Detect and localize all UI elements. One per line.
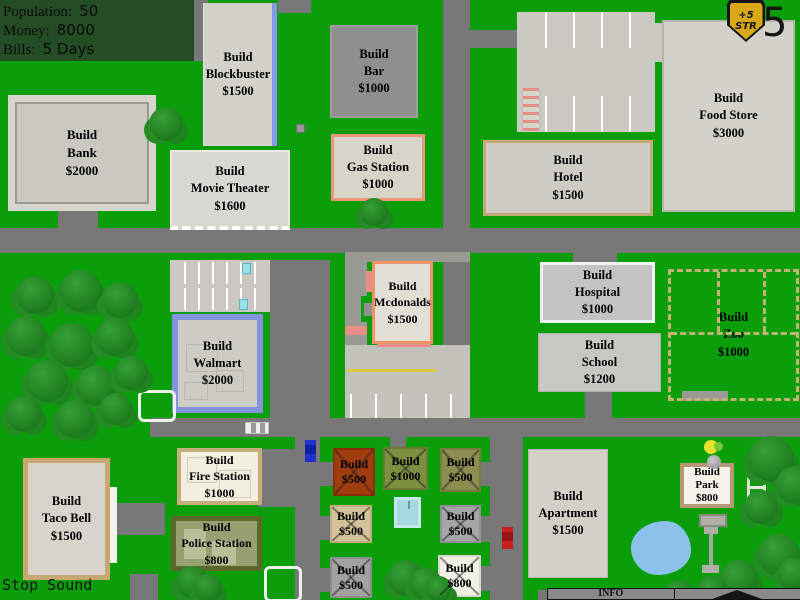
- build-house-button[interactable]: Build $500: [333, 448, 375, 496]
- tree: [16, 276, 54, 314]
- build-label: Build: [340, 457, 368, 472]
- pond: [631, 521, 691, 575]
- building-name: Movie Theater: [191, 180, 270, 197]
- building-name: Bar: [364, 63, 384, 80]
- building-price: $1000: [582, 301, 613, 318]
- building-price: $1600: [214, 198, 245, 215]
- road: [443, 30, 517, 48]
- day-counter: 5: [762, 1, 787, 45]
- population-value: 50: [79, 2, 98, 20]
- expand-panel-tab[interactable]: [675, 589, 800, 599]
- play-ball: [707, 455, 721, 469]
- build-hospital-button[interactable]: Build Hospital $1000: [540, 262, 655, 323]
- house-price: $500: [339, 578, 363, 593]
- white-car: [245, 422, 269, 434]
- badge-bonus: +5: [738, 10, 753, 21]
- zoo-fence-line: [763, 272, 766, 332]
- trash-can: [296, 124, 305, 133]
- driveway: [115, 503, 165, 535]
- build-label: Build: [52, 493, 81, 510]
- cart-return-rack: [521, 88, 541, 132]
- building-name: Zoo: [723, 326, 744, 343]
- build-walmart-button[interactable]: Build Walmart $2000: [172, 314, 263, 413]
- tree: [149, 107, 183, 141]
- tree: [360, 198, 388, 226]
- flower-leaf: [714, 442, 723, 451]
- parking-lines: [350, 394, 468, 418]
- driveway: [318, 462, 334, 486]
- driveway: [58, 210, 98, 230]
- road: [270, 260, 330, 418]
- building-price: $2000: [66, 162, 99, 180]
- swimming-pool: [394, 497, 421, 528]
- bills-label: Bills:: [3, 42, 36, 59]
- tree: [26, 360, 68, 402]
- tree: [776, 466, 800, 504]
- build-label: Build: [337, 509, 365, 524]
- bills-row: Bills: 5 Days: [3, 40, 194, 59]
- build-house-button[interactable]: Build $500: [330, 557, 372, 598]
- house-price: $500: [342, 472, 366, 487]
- build-label: Build: [203, 338, 232, 355]
- badge-stat: STR: [735, 21, 757, 32]
- lamppost-pole: [709, 533, 713, 569]
- bills-value: 5 Days: [43, 40, 95, 58]
- house-price: $500: [449, 470, 473, 485]
- build-taco-bell-button[interactable]: Build Taco Bell $1500: [23, 458, 110, 580]
- building-price: $2000: [202, 372, 233, 389]
- money-label: Money:: [3, 23, 50, 40]
- zoo-fence-line: [717, 272, 720, 332]
- build-label: Build: [359, 46, 388, 63]
- build-label: Build: [223, 49, 252, 66]
- tree: [100, 393, 132, 425]
- info-tab[interactable]: INFO: [548, 589, 675, 599]
- population-row: Population: 50: [3, 2, 194, 21]
- building-price: $1000: [718, 344, 749, 361]
- parking-lines: [519, 12, 653, 48]
- driveway: [585, 392, 612, 418]
- build-food-store-button[interactable]: Build Food Store $3000: [662, 20, 795, 212]
- tree: [778, 558, 800, 590]
- building-price: $800: [696, 492, 718, 505]
- building-price: $1000: [362, 176, 393, 193]
- tree: [96, 318, 134, 356]
- building-price: $1200: [584, 371, 615, 388]
- build-label: Build: [583, 267, 612, 284]
- lamppost-base: [702, 565, 719, 573]
- drive-thru-window: [345, 326, 367, 335]
- house-price: $500: [339, 524, 363, 539]
- build-house-button[interactable]: Build $800: [438, 555, 481, 597]
- build-police-station-button[interactable]: Build Police Station $800: [171, 516, 262, 571]
- build-label: Build: [205, 452, 233, 469]
- building-name: Gas Station: [347, 159, 409, 176]
- build-house-button[interactable]: Build $500: [440, 505, 481, 543]
- road: [130, 574, 158, 600]
- road: [278, 0, 311, 13]
- population-label: Population:: [3, 4, 72, 21]
- pool-ladder: [408, 501, 410, 509]
- build-hotel-button[interactable]: Build Hotel $1500: [483, 140, 653, 216]
- build-label: Build: [719, 309, 748, 326]
- build-movie-theater-button[interactable]: Build Movie Theater $1600: [170, 150, 290, 230]
- building-price: $1000: [205, 485, 235, 502]
- house-price: $500: [449, 524, 473, 539]
- build-label: Build: [445, 561, 473, 576]
- tree: [60, 270, 102, 312]
- building-name: Police Station: [181, 535, 251, 552]
- build-label: Build: [202, 519, 230, 536]
- build-label: Build: [391, 454, 419, 469]
- building-name: Taco Bell: [42, 510, 91, 527]
- build-house-button[interactable]: Build $1000: [383, 447, 428, 490]
- build-house-button[interactable]: Build $500: [440, 448, 481, 492]
- build-label: Build: [553, 488, 582, 505]
- building-price: $1000: [358, 80, 389, 97]
- building-name: Mcdonalds: [374, 294, 431, 311]
- build-label: Build: [388, 278, 416, 295]
- tree: [50, 323, 94, 367]
- shopping-cart-icon: [242, 263, 251, 274]
- building-name: Fire Station: [189, 468, 250, 485]
- build-label: Build: [215, 163, 244, 180]
- building-name: Hotel: [553, 169, 582, 186]
- tree: [6, 396, 42, 432]
- game-map: Build Zoo $1000 Build Bank $2000 Build B…: [0, 0, 800, 600]
- tree: [102, 282, 138, 318]
- build-fire-station-button[interactable]: Build Fire Station $1000: [177, 448, 262, 505]
- building-name: School: [582, 354, 617, 371]
- driveway: [258, 449, 300, 507]
- building-name: Hospital: [575, 284, 620, 301]
- building-name: Walmart: [194, 355, 242, 372]
- tree: [114, 356, 148, 390]
- building-name: Park: [695, 479, 718, 492]
- house-price: $1000: [391, 469, 421, 484]
- road: [490, 437, 523, 600]
- build-label: Build: [585, 337, 614, 354]
- menu-board: [364, 303, 372, 316]
- build-mcdonalds-button[interactable]: Build Mcdonalds $1500: [372, 261, 433, 344]
- build-label: Build: [553, 152, 582, 169]
- building-name: Bank: [67, 144, 97, 162]
- empty-plot[interactable]: [138, 390, 176, 422]
- build-apartment-button[interactable]: Build Apartment $1500: [528, 449, 608, 578]
- stop-sound-button[interactable]: Stop Sound: [2, 576, 92, 594]
- park-bench: [699, 514, 727, 527]
- building-price: $800: [205, 552, 229, 569]
- up-triangle-icon: [712, 590, 762, 599]
- build-label: Build: [337, 563, 365, 578]
- info-panel: INFO: [547, 588, 800, 600]
- building-price: $1500: [222, 83, 253, 100]
- money-row: Money: 8000: [3, 21, 194, 40]
- zoo-fence-line: [671, 332, 796, 335]
- tree: [6, 316, 46, 356]
- build-zoo-button[interactable]: Build Zoo $1000: [668, 269, 799, 401]
- build-blockbuster-button[interactable]: Build Blockbuster $1500: [203, 3, 277, 146]
- build-gas-station-button[interactable]: Build Gas Station $1000: [331, 134, 425, 201]
- empty-plot[interactable]: [264, 566, 302, 600]
- building-name: Blockbuster: [206, 66, 271, 83]
- building-name: Apartment: [538, 505, 597, 522]
- building-price: $1500: [51, 528, 82, 545]
- build-park-button[interactable]: Build Park $800: [680, 463, 734, 508]
- shopping-cart-icon: [239, 299, 248, 310]
- building-price: $1500: [552, 187, 583, 204]
- build-house-button[interactable]: Build $500: [330, 505, 372, 543]
- building-price: $1500: [552, 522, 583, 539]
- tree: [194, 574, 222, 600]
- parking-yellow-line: [348, 369, 436, 372]
- build-label: Build: [363, 142, 392, 159]
- build-bar-button[interactable]: Build Bar $1000: [330, 25, 418, 118]
- money-value: 8000: [57, 21, 95, 39]
- build-bank-button[interactable]: Build Bank $2000: [15, 102, 149, 204]
- blue-car: [305, 440, 316, 462]
- building-price: $3000: [713, 125, 744, 142]
- tree: [744, 490, 778, 524]
- build-label: Build: [714, 90, 743, 107]
- build-label: Build: [446, 509, 474, 524]
- tree: [56, 400, 94, 438]
- building-name: Food Store: [699, 107, 757, 124]
- road: [0, 228, 800, 253]
- build-label: Build: [446, 455, 474, 470]
- build-school-button[interactable]: Build School $1200: [538, 333, 661, 392]
- house-price: $800: [448, 576, 472, 591]
- red-car: [502, 527, 513, 549]
- stats-panel: Population: 50 Money: 8000 Bills: 5 Days: [0, 0, 194, 61]
- building-price: $1500: [388, 311, 418, 328]
- build-label: Build: [67, 126, 97, 144]
